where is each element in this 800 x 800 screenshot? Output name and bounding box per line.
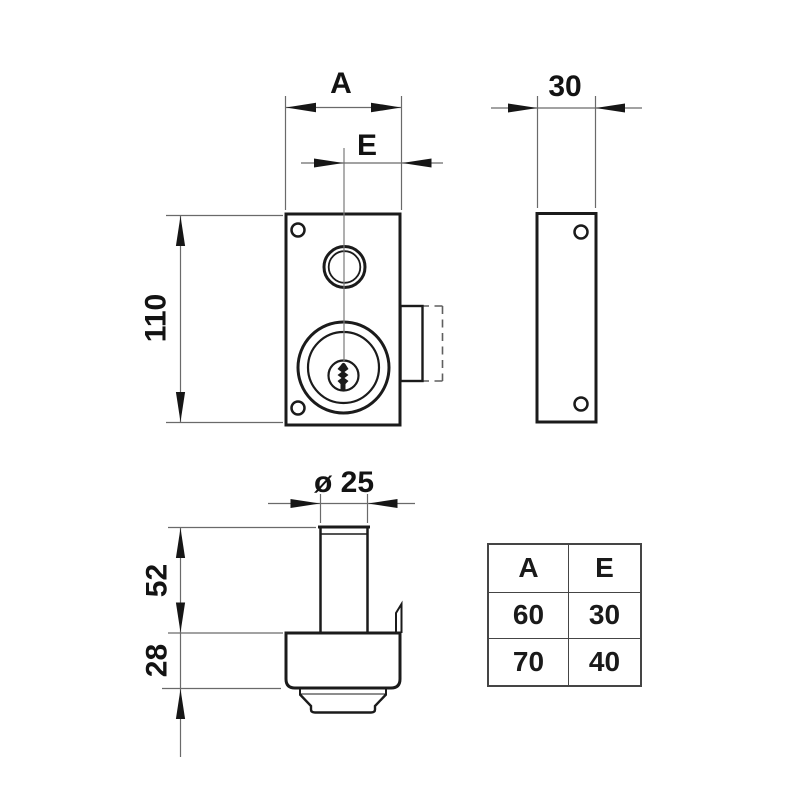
size-table-cell-e-row1: 30 <box>568 592 640 639</box>
dimension-110-label: 110 <box>140 294 173 342</box>
arrowhead-top <box>176 216 185 246</box>
screw-hole-top <box>575 226 588 239</box>
size-table-header-e: E <box>568 545 640 592</box>
screw-hole-bottom <box>292 402 305 415</box>
rosette-bowl <box>300 695 386 713</box>
retaining-hook <box>396 604 402 633</box>
dimension-diameter-25: ø 25 <box>268 466 415 523</box>
dimension-30: 30 <box>491 70 642 208</box>
dimension-110: 110 <box>140 216 284 423</box>
drawing-svg: A E 110 <box>0 0 800 800</box>
dimension-30-label: 30 <box>548 70 581 103</box>
size-table-header-a: A <box>489 545 568 592</box>
dimension-diameter-label: ø 25 <box>314 466 374 499</box>
arrowhead-52-top <box>176 528 185 558</box>
screw-hole-bottom <box>575 398 588 411</box>
arrowhead-left <box>508 104 538 113</box>
front-view <box>286 148 443 425</box>
lock-technical-drawing: A E 110 <box>0 0 800 800</box>
arrowhead-right <box>402 159 432 168</box>
dimension-52-label: 52 <box>141 564 174 597</box>
screw-hole-top <box>292 224 305 237</box>
arrowhead-28-bottom <box>176 689 185 719</box>
arrowhead-left <box>291 499 321 508</box>
lock-case-profile <box>286 633 400 688</box>
dimension-e: E <box>301 129 443 168</box>
arrowhead-right <box>596 104 626 113</box>
size-table-cell-e-row2: 40 <box>568 638 640 685</box>
dimension-a-label: A <box>330 67 352 100</box>
size-table-cell-a-row1: 60 <box>489 592 568 639</box>
bolt-extended-dashed-outline <box>421 306 443 381</box>
bolt <box>401 306 423 381</box>
side-view <box>537 214 596 423</box>
side-plate <box>537 214 596 423</box>
arrowhead-left <box>314 159 344 168</box>
size-table-cell-a-row2: 70 <box>489 638 568 685</box>
arrowhead-left <box>286 103 316 113</box>
dimension-e-label: E <box>357 129 377 162</box>
arrowhead-right <box>371 103 401 113</box>
arrowhead-52-bottom <box>176 603 185 633</box>
dimension-28-label: 28 <box>141 644 174 677</box>
arrowhead-bottom <box>176 392 185 422</box>
arrowhead-right <box>368 499 398 508</box>
profile-view <box>286 527 402 713</box>
size-table: A E 60 30 70 40 <box>487 543 642 687</box>
